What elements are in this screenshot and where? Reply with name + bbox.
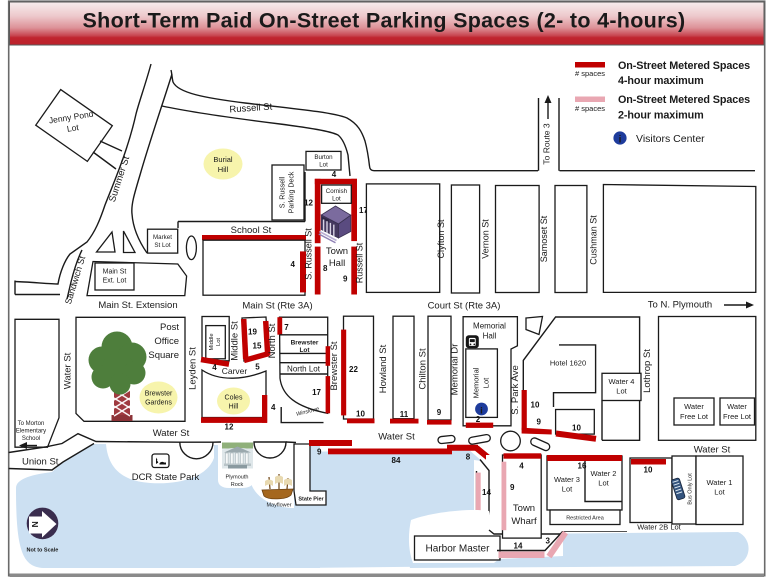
svg-text:84: 84 [392,456,401,465]
svg-text:Middle: Middle [209,333,215,350]
svg-text:9: 9 [317,448,322,457]
svg-text:Water St: Water St [378,432,415,443]
svg-text:19: 19 [248,328,257,337]
svg-text:# spaces: # spaces [575,69,605,78]
svg-text:14: 14 [514,542,523,551]
svg-text:DCR State Park: DCR State Park [132,472,200,483]
svg-text:North St: North St [267,323,278,358]
svg-text:Post: Post [160,322,179,333]
svg-text:Water St: Water St [153,428,190,439]
svg-text:Leyden St: Leyden St [188,347,199,390]
svg-text:4: 4 [271,403,276,412]
svg-text:Russell St: Russell St [355,242,365,283]
svg-text:Lothrop St: Lothrop St [642,349,653,393]
svg-text:Court St (Rte 3A): Court St (Rte 3A) [428,301,501,312]
svg-text:Hall: Hall [329,258,345,269]
svg-text:5: 5 [255,363,260,372]
svg-text:Lot: Lot [299,347,310,354]
svg-text:Wharf: Wharf [511,516,537,527]
svg-text:16: 16 [578,462,587,471]
svg-text:i: i [619,135,622,146]
svg-text:Water: Water [727,402,747,411]
svg-text:4: 4 [519,462,524,471]
svg-text:Memorial Dr: Memorial Dr [450,344,461,396]
svg-text:11: 11 [400,410,409,419]
svg-text:Water 4: Water 4 [609,377,635,386]
svg-text:On-Street Metered Spaces: On-Street Metered Spaces [618,60,750,72]
svg-text:4-hour maximum: 4-hour maximum [618,75,704,87]
svg-text:Bus Only Lot: Bus Only Lot [688,473,694,505]
svg-text:17: 17 [312,388,321,397]
svg-text:Elementary: Elementary [16,429,46,435]
svg-text:8: 8 [466,453,471,462]
svg-text:Plymouth: Plymouth [226,475,249,481]
svg-text:Lot: Lot [216,338,222,346]
svg-text:Burial: Burial [213,155,233,164]
svg-text:10: 10 [644,466,653,475]
svg-text:9: 9 [437,408,442,417]
svg-text:Short-Term Paid On-Street Park: Short-Term Paid On-Street Parking Spaces… [83,9,686,33]
svg-text:Water 2: Water 2 [591,469,617,478]
svg-text:Water St: Water St [63,352,74,389]
svg-text:10: 10 [572,424,581,433]
svg-text:9: 9 [510,483,515,492]
svg-text:Water 3: Water 3 [554,475,580,484]
svg-text:Lot: Lot [616,387,627,396]
svg-text:School: School [22,436,40,442]
svg-text:Market: Market [153,234,172,241]
svg-text:Lot: Lot [714,488,725,497]
svg-text:St Lot: St Lot [154,242,170,249]
svg-text:Main St: Main St [103,269,127,276]
svg-text:4: 4 [332,170,337,179]
svg-text:Rock: Rock [231,482,244,488]
svg-text:State Pier: State Pier [298,497,324,503]
svg-text:Vernon St: Vernon St [481,219,491,259]
svg-text:Free Lot: Free Lot [723,412,752,421]
svg-text:Chilton St: Chilton St [418,348,429,390]
svg-text:Free Lot: Free Lot [680,412,709,421]
svg-text:7: 7 [284,323,289,332]
svg-text:15: 15 [253,342,262,351]
svg-text:Cushman St: Cushman St [589,215,599,265]
svg-text:Samoset St: Samoset St [539,215,549,262]
svg-text:Lot: Lot [66,122,80,134]
svg-text:# spaces: # spaces [575,104,605,113]
svg-text:22: 22 [349,365,358,374]
svg-text:Gardens: Gardens [145,400,172,407]
svg-text:12: 12 [225,423,234,432]
svg-text:3: 3 [546,537,551,546]
svg-text:Harbor Master: Harbor Master [426,544,491,555]
svg-text:Burton: Burton [314,154,333,161]
svg-text:8: 8 [323,264,328,273]
svg-text:Ext. Lot: Ext. Lot [103,278,127,285]
svg-text:S. Russell St: S. Russell St [304,228,314,280]
svg-text:On-Street Metered Spaces: On-Street Metered Spaces [618,94,750,106]
svg-text:Brewster: Brewster [291,340,319,347]
svg-text:2: 2 [476,415,481,424]
svg-text:Coles: Coles [225,395,243,402]
svg-text:Howland St: Howland St [378,344,389,393]
svg-text:Restricted Area: Restricted Area [566,516,605,522]
svg-text:Hill: Hill [218,165,229,174]
svg-text:Not to Scale: Not to Scale [27,548,59,554]
svg-text:Main St. Extension: Main St. Extension [98,300,177,311]
svg-text:12: 12 [304,199,313,208]
svg-text:10: 10 [531,401,540,410]
svg-text:Union St: Union St [22,457,59,468]
svg-text:Memorial: Memorial [472,367,481,398]
svg-text:Brewster: Brewster [145,391,173,398]
svg-text:Brewster St: Brewster St [329,341,340,390]
svg-text:To N. Plymouth: To N. Plymouth [648,300,712,311]
svg-text:Town: Town [326,246,348,257]
svg-text:To Route 3: To Route 3 [542,123,552,164]
svg-text:Middle St: Middle St [230,321,241,361]
svg-text:North Lot: North Lot [287,365,321,374]
svg-text:Hotel 1620: Hotel 1620 [550,359,586,368]
svg-text:9: 9 [537,418,542,427]
svg-text:Lot: Lot [482,377,491,388]
svg-text:School St: School St [231,225,272,236]
svg-text:4: 4 [212,363,217,372]
svg-text:S. Russell: S. Russell [280,176,287,208]
svg-text:9: 9 [343,275,348,284]
svg-text:Hill: Hill [229,404,239,411]
svg-text:Memorial: Memorial [473,322,506,331]
svg-text:Lot: Lot [562,485,573,494]
svg-text:Square: Square [148,350,179,361]
svg-text:Cornish: Cornish [326,188,348,195]
svg-text:Water St: Water St [694,445,731,456]
svg-text:N: N [30,521,40,527]
svg-text:10: 10 [356,410,365,419]
svg-text:Lot: Lot [319,162,328,169]
svg-text:Clyfton St: Clyfton St [436,219,446,259]
svg-text:Town: Town [513,503,535,514]
svg-text:i: i [480,405,483,416]
svg-text:4: 4 [291,260,296,269]
svg-text:To Morton: To Morton [18,421,45,427]
svg-text:S. Park Ave: S. Park Ave [510,365,521,414]
svg-text:Office: Office [154,336,179,347]
svg-text:Parking Deck: Parking Deck [289,171,296,213]
svg-text:2-hour maximum: 2-hour maximum [618,110,704,122]
svg-text:Carver: Carver [222,366,248,376]
svg-text:14: 14 [482,488,491,497]
svg-text:Hall: Hall [483,332,497,341]
svg-text:Lot: Lot [598,479,609,488]
svg-text:Visitors Center: Visitors Center [636,133,705,145]
svg-text:Water 1: Water 1 [707,478,733,487]
svg-text:Main St (Rte 3A): Main St (Rte 3A) [242,301,312,312]
svg-text:Mayflower: Mayflower [266,503,291,509]
svg-text:Lot: Lot [332,196,341,203]
svg-text:Water: Water [684,402,704,411]
